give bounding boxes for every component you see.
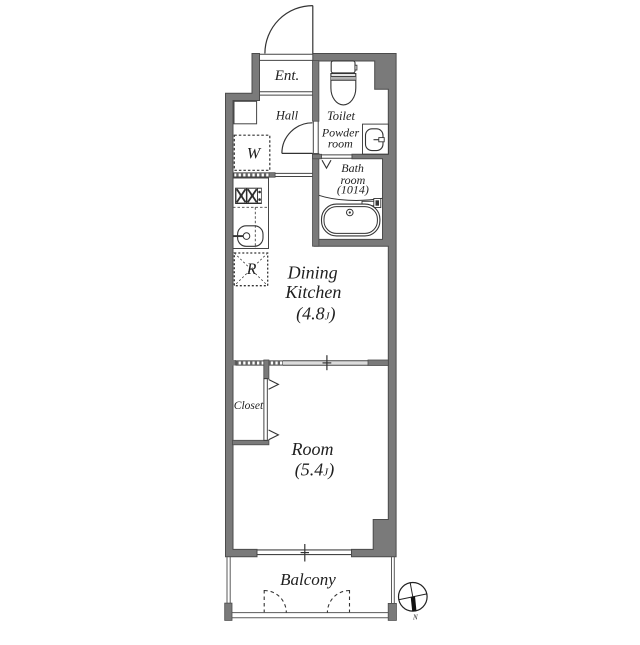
svg-text:Dining: Dining <box>287 262 338 282</box>
svg-text:Room: Room <box>291 439 334 459</box>
svg-text:Toilet: Toilet <box>327 109 356 123</box>
svg-text:Hall: Hall <box>275 109 299 123</box>
svg-text:room: room <box>328 137 353 151</box>
svg-text:(4.8J): (4.8J) <box>296 304 335 325</box>
svg-text:Kitchen: Kitchen <box>284 282 341 302</box>
svg-text:W: W <box>247 146 262 163</box>
svg-text:R: R <box>246 261 257 278</box>
svg-text:N: N <box>412 613 418 621</box>
svg-text:(1014): (1014) <box>337 183 369 197</box>
svg-text:Closet: Closet <box>234 400 264 412</box>
svg-text:Balcony: Balcony <box>280 570 336 589</box>
svg-text:(5.4J): (5.4J) <box>295 460 334 481</box>
svg-text:Ent.: Ent. <box>274 68 300 84</box>
